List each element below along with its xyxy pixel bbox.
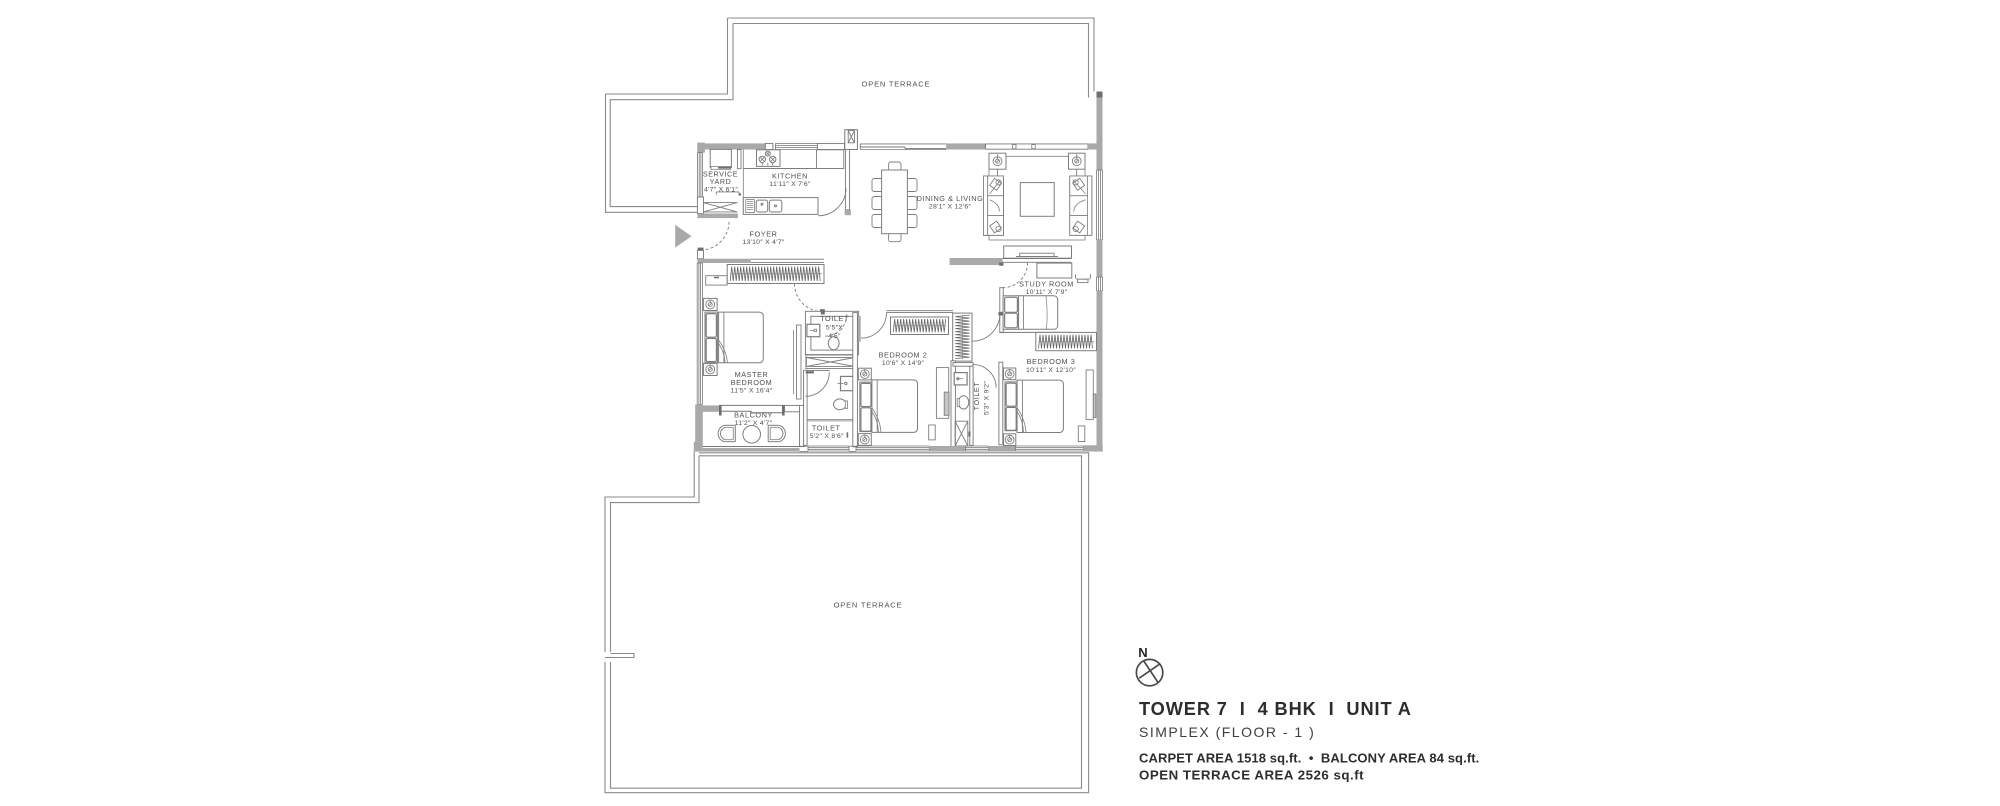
svg-text:10′11″ X 7′9″: 10′11″ X 7′9″ [1026,289,1068,296]
svg-text:CARPET AREA 1518 sq.ft. • BA: CARPET AREA 1518 sq.ft. • BALCONY AREA 8… [1139,751,1479,766]
svg-text:10′11″ X 12′10″: 10′11″ X 12′10″ [1026,367,1076,374]
svg-text:TOILET: TOILET [972,382,981,411]
svg-text:BEDROOM 2: BEDROOM 2 [879,350,928,359]
svg-text:SIMPLEX (FLOOR - 1 ): SIMPLEX (FLOOR - 1 ) [1139,724,1315,740]
svg-text:11′11″ X 7′6″: 11′11″ X 7′6″ [769,181,811,188]
svg-text:4′7″ X 6′1″: 4′7″ X 6′1″ [704,186,738,193]
svg-text:DINING & LIVING: DINING & LIVING [917,194,984,203]
svg-text:11′5″ X 16′4″: 11′5″ X 16′4″ [731,388,773,395]
svg-text:11′2″ X 4′7″: 11′2″ X 4′7″ [735,420,773,427]
svg-text:STUDY ROOM: STUDY ROOM [1019,279,1074,288]
svg-text:TOWER 7 I 4 BHK I UNIT A: TOWER 7 I 4 BHK I UNIT A [1139,699,1412,719]
svg-text:YARD: YARD [710,177,732,186]
svg-text:5′5″X: 5′5″X [826,324,843,331]
svg-text:4′5″: 4′5″ [828,333,841,340]
svg-text:FOYER: FOYER [750,229,778,238]
svg-text:KITCHEN: KITCHEN [772,171,808,180]
svg-text:10′6″ X 14′9″: 10′6″ X 14′9″ [882,360,925,367]
svg-text:OPEN TERRACE: OPEN TERRACE [834,601,903,610]
svg-text:TOILET: TOILET [820,314,849,323]
svg-text:13′10″ X 4′7″: 13′10″ X 4′7″ [742,239,785,246]
svg-text:OPEN TERRACE AREA 2526 sq.ft: OPEN TERRACE AREA 2526 sq.ft [1139,768,1364,783]
svg-text:5′3″ X 9′2″: 5′3″ X 9′2″ [983,381,990,415]
svg-text:28′1″ X 12′6″: 28′1″ X 12′6″ [929,204,972,211]
svg-text:BALCONY: BALCONY [734,411,773,420]
svg-text:BEDROOM 3: BEDROOM 3 [1027,357,1076,366]
svg-text:5′2″ X 8′6″: 5′2″ X 8′6″ [810,433,844,440]
svg-text:TOILET: TOILET [812,423,841,432]
svg-text:OPEN TERRACE: OPEN TERRACE [862,80,931,89]
svg-text:N: N [1138,645,1147,660]
svg-text:BEDROOM: BEDROOM [731,378,773,387]
